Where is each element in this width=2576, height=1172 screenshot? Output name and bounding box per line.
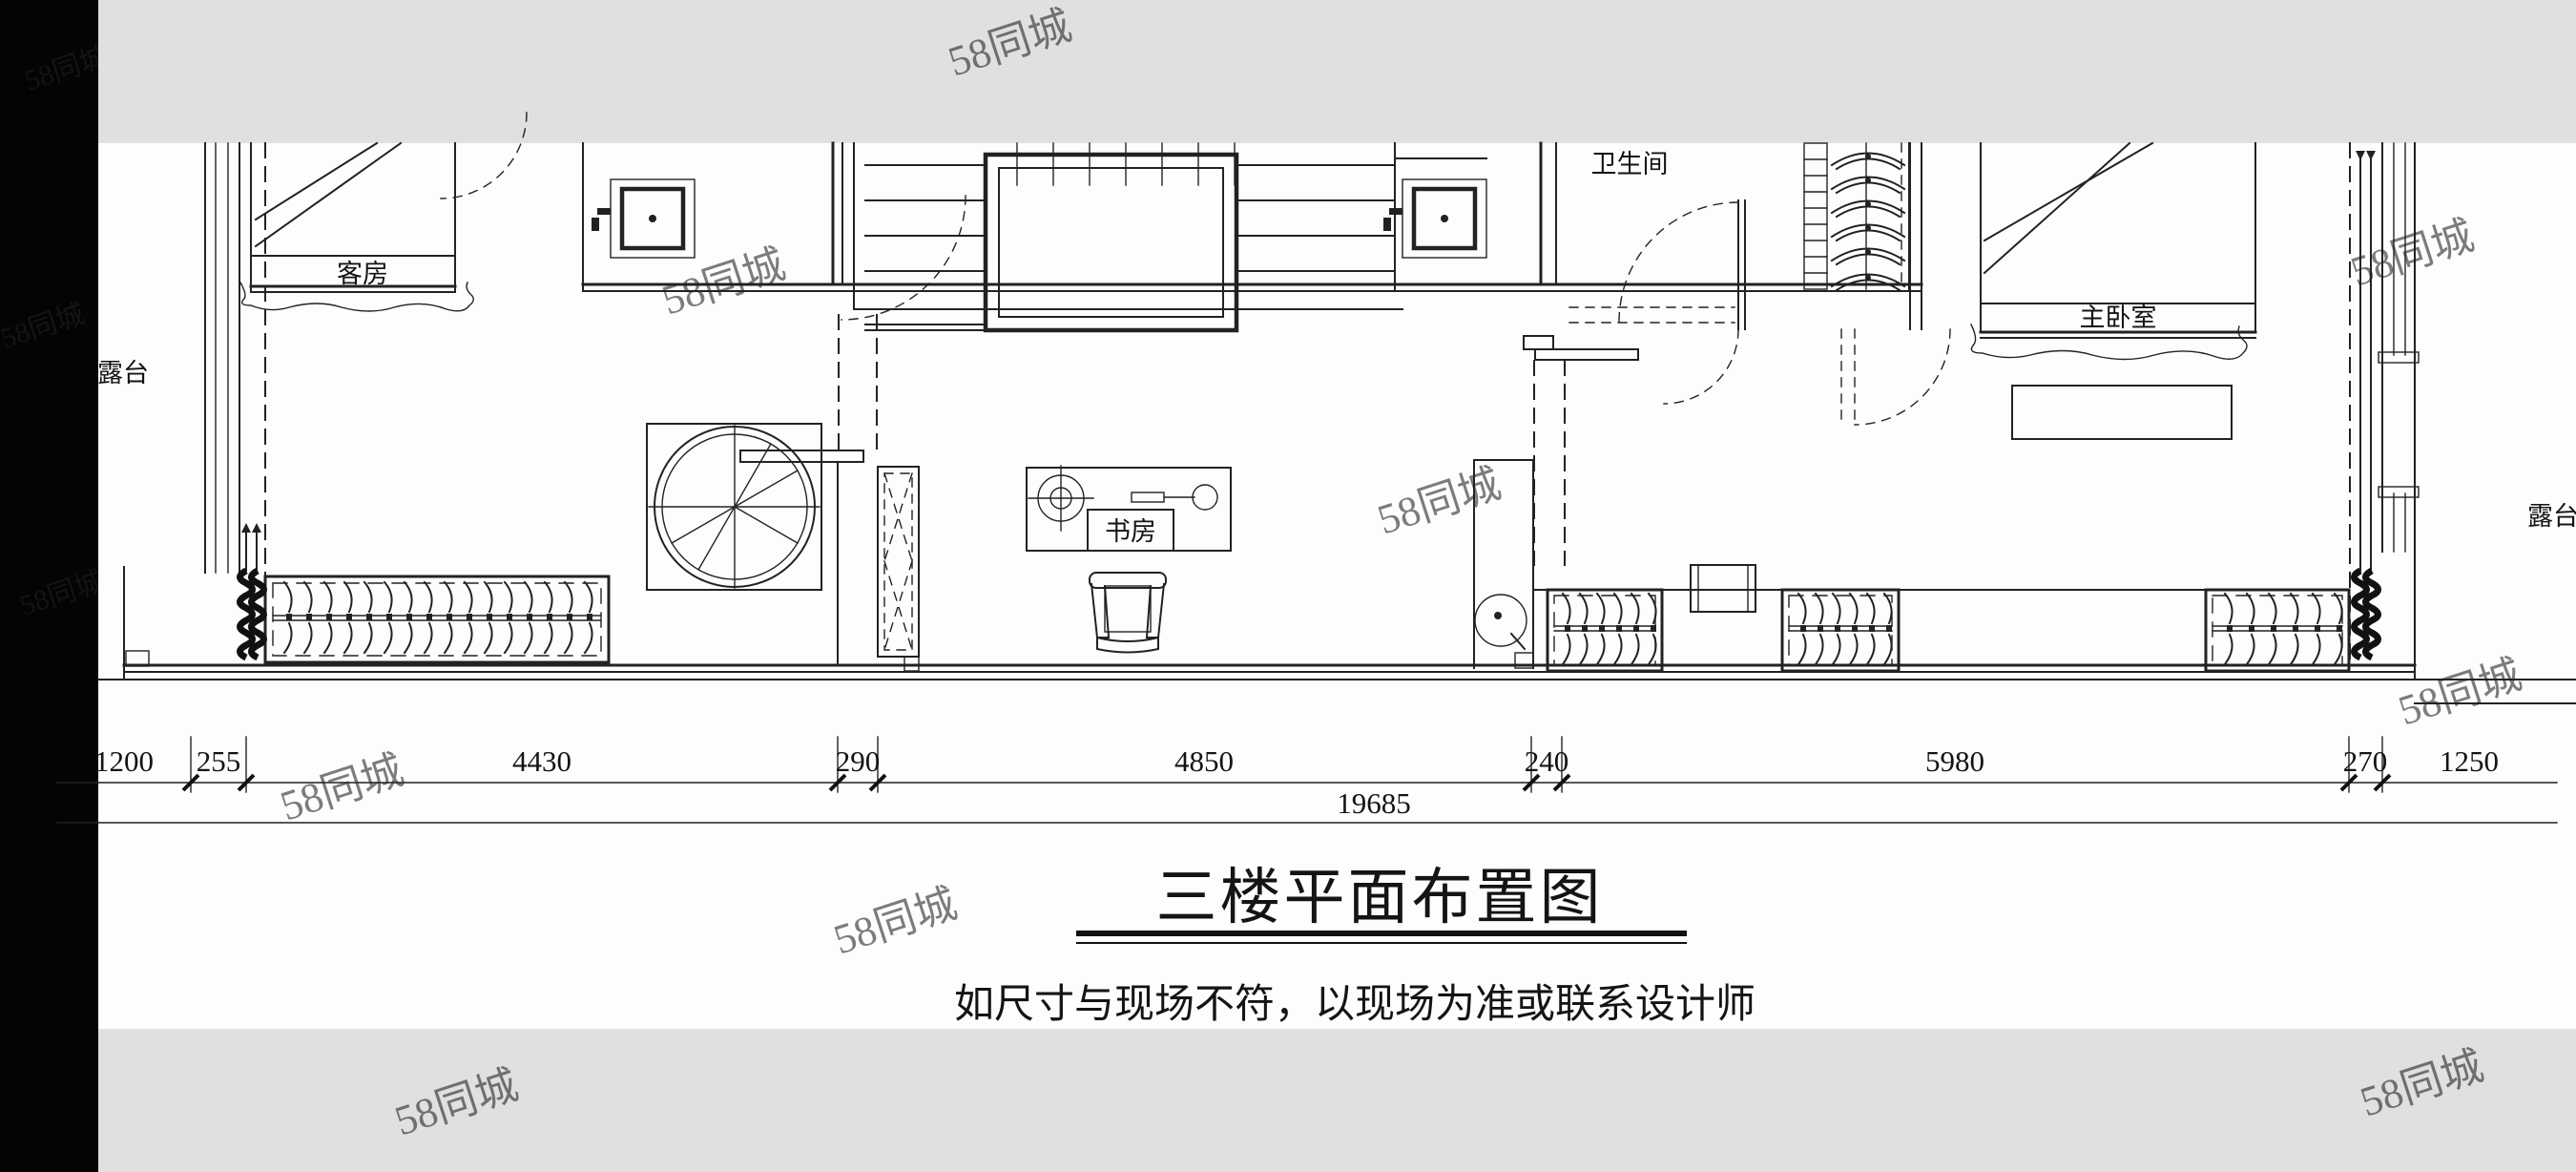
- curtain-right: [2355, 151, 2379, 658]
- armchair: [1090, 573, 1166, 653]
- terrace-left-label: 露台: [97, 359, 149, 387]
- dim-total: 19685: [1337, 786, 1411, 820]
- dim-5980: 5980: [1925, 744, 1984, 778]
- wardrobe-long-left: [265, 576, 609, 662]
- stair-handrail: [740, 450, 863, 462]
- bathroom-label: 卫生间: [1591, 150, 1669, 178]
- drawing-disclaimer: 如尺寸与现场不符，以现场为准或联系设计师: [954, 983, 1755, 1027]
- watermark: 58同城: [2355, 1042, 2489, 1125]
- watermark: 58同城: [828, 880, 963, 963]
- bedroom-bench: [2012, 386, 2232, 439]
- watermarks: 58同城 58同城 58同城 58同城 58同城 58同城 58同城 58同城 …: [0, 2, 2527, 1144]
- study-area: 书房: [1027, 466, 1231, 653]
- master-bedroom-label: 主卧室: [2080, 303, 2157, 332]
- watermark: 58同城: [656, 241, 791, 324]
- guest-room: 客房: [240, 143, 473, 311]
- wardrobe-right-3: [2206, 590, 2349, 671]
- watermark: 58同城: [275, 746, 409, 829]
- dim-240: 240: [1525, 744, 1569, 778]
- master-door-arc: [1855, 329, 1950, 425]
- desk-accessory-symbol: [1132, 485, 1217, 510]
- upper-flight-treads: [1017, 143, 1235, 185]
- terrace-right-label: 露台: [2527, 502, 2576, 531]
- floorplan-screenshot: 58同城 58同城 58同城 58同城 58同城 58同城 58同城 58同城 …: [0, 0, 2576, 1172]
- wardrobe-right-2: [1782, 590, 1899, 671]
- watermark: 58同城: [2393, 651, 2527, 734]
- watermark: 58同城: [1372, 460, 1506, 543]
- drawing-title: 三楼平面布置图: [1156, 864, 1604, 931]
- shaft-cabinet: [878, 467, 919, 671]
- watermark: 58同城: [2345, 212, 2480, 295]
- side-table: [1691, 565, 1755, 612]
- wall-appliance-left: [592, 179, 695, 258]
- bathroom: 卫生间: [1383, 143, 1909, 290]
- wall-appliance-right: [1383, 179, 1486, 258]
- watermark: 58同城: [389, 1061, 524, 1144]
- dim-4850: 4850: [1174, 744, 1234, 778]
- study-label: 书房: [1105, 517, 1156, 546]
- wardrobe-right-1: [1548, 590, 1662, 671]
- watermark-on-bar: 58同城: [0, 298, 89, 354]
- bath-door-arc-2: [1664, 329, 1738, 404]
- spiral-staircase: [647, 424, 863, 590]
- dim-1250: 1250: [2440, 744, 2499, 778]
- stairwell-railing-inner: [999, 168, 1223, 317]
- curtain-left: [240, 523, 264, 658]
- hall-door-arc: [841, 196, 966, 320]
- watermark: 58同城: [943, 2, 1077, 85]
- dim-4430: 4430: [512, 744, 571, 778]
- doors: [441, 113, 1950, 425]
- sliding-door-pocket: [1524, 336, 1553, 349]
- floor-plan-drawing: 58同城 58同城 58同城 58同城 58同城 58同城 58同城 58同城 …: [0, 0, 2576, 1172]
- dimension-chain: 1200 255 4430 290 4850 240 5980 270 1250…: [57, 737, 2557, 823]
- watermark-on-bar: 58同城: [21, 40, 113, 96]
- dim-290: 290: [836, 744, 881, 778]
- master-bedroom: 主卧室: [1971, 143, 2255, 439]
- towel-ladder: [1804, 143, 1827, 289]
- desk-lamp-symbol: [1028, 466, 1093, 531]
- bath-door-arc: [1619, 202, 1738, 322]
- dim-270: 270: [2343, 744, 2388, 778]
- sliding-door-panel: [1535, 349, 1638, 360]
- staircase: [865, 143, 1395, 330]
- title-block: 三楼平面布置图 如尺寸与现场不符，以现场为准或联系设计师: [954, 864, 1755, 1027]
- dim-255: 255: [197, 744, 241, 778]
- guest-room-door-arc: [441, 113, 527, 199]
- watermark-on-bar: 58同城: [16, 565, 108, 621]
- guest-room-label: 客房: [337, 260, 388, 288]
- bath-closet: [1832, 143, 1909, 290]
- dim-1200: 1200: [94, 744, 154, 778]
